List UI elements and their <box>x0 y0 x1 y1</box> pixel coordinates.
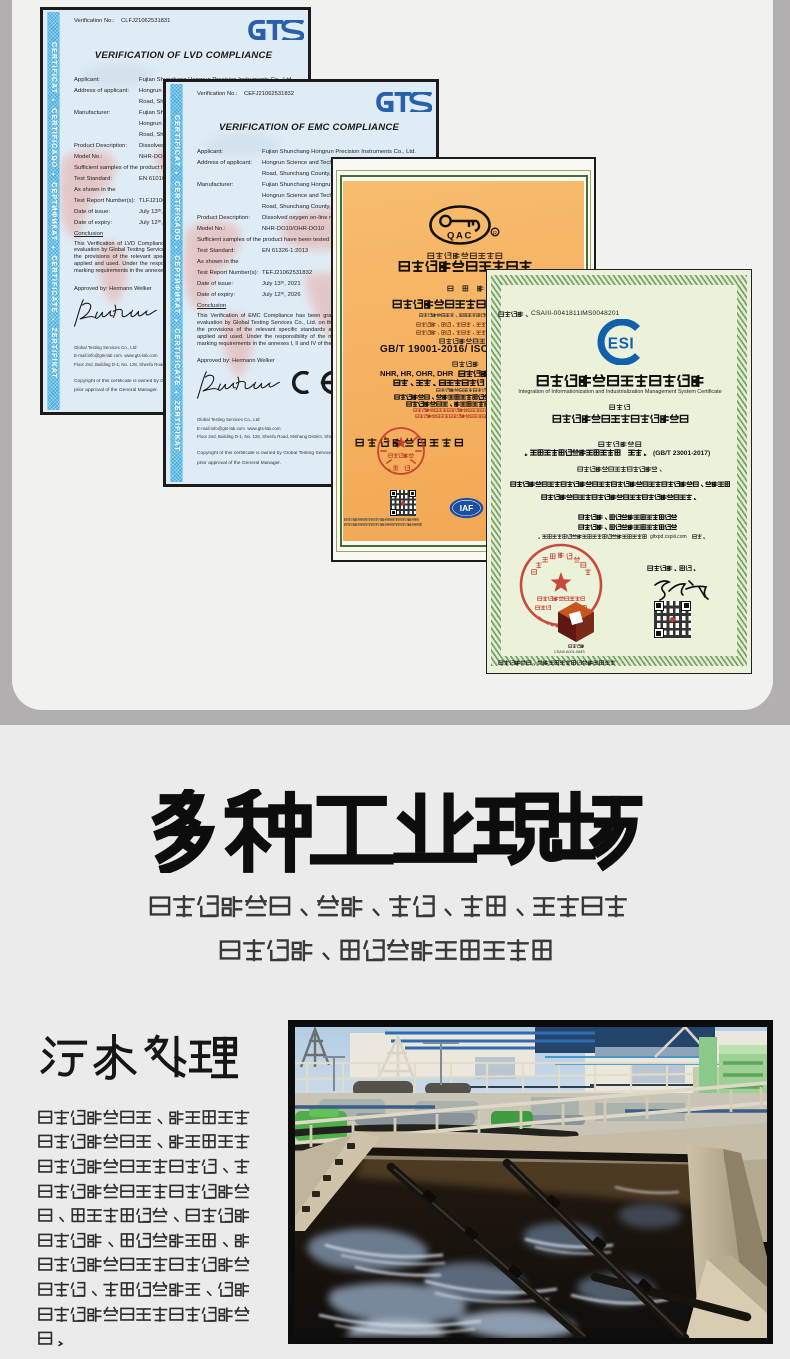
svg-text:QAC: QAC <box>447 231 473 242</box>
svg-text:ESI: ESI <box>608 336 634 353</box>
svg-text:R: R <box>493 231 497 237</box>
svg-text:IAF: IAF <box>460 503 474 513</box>
